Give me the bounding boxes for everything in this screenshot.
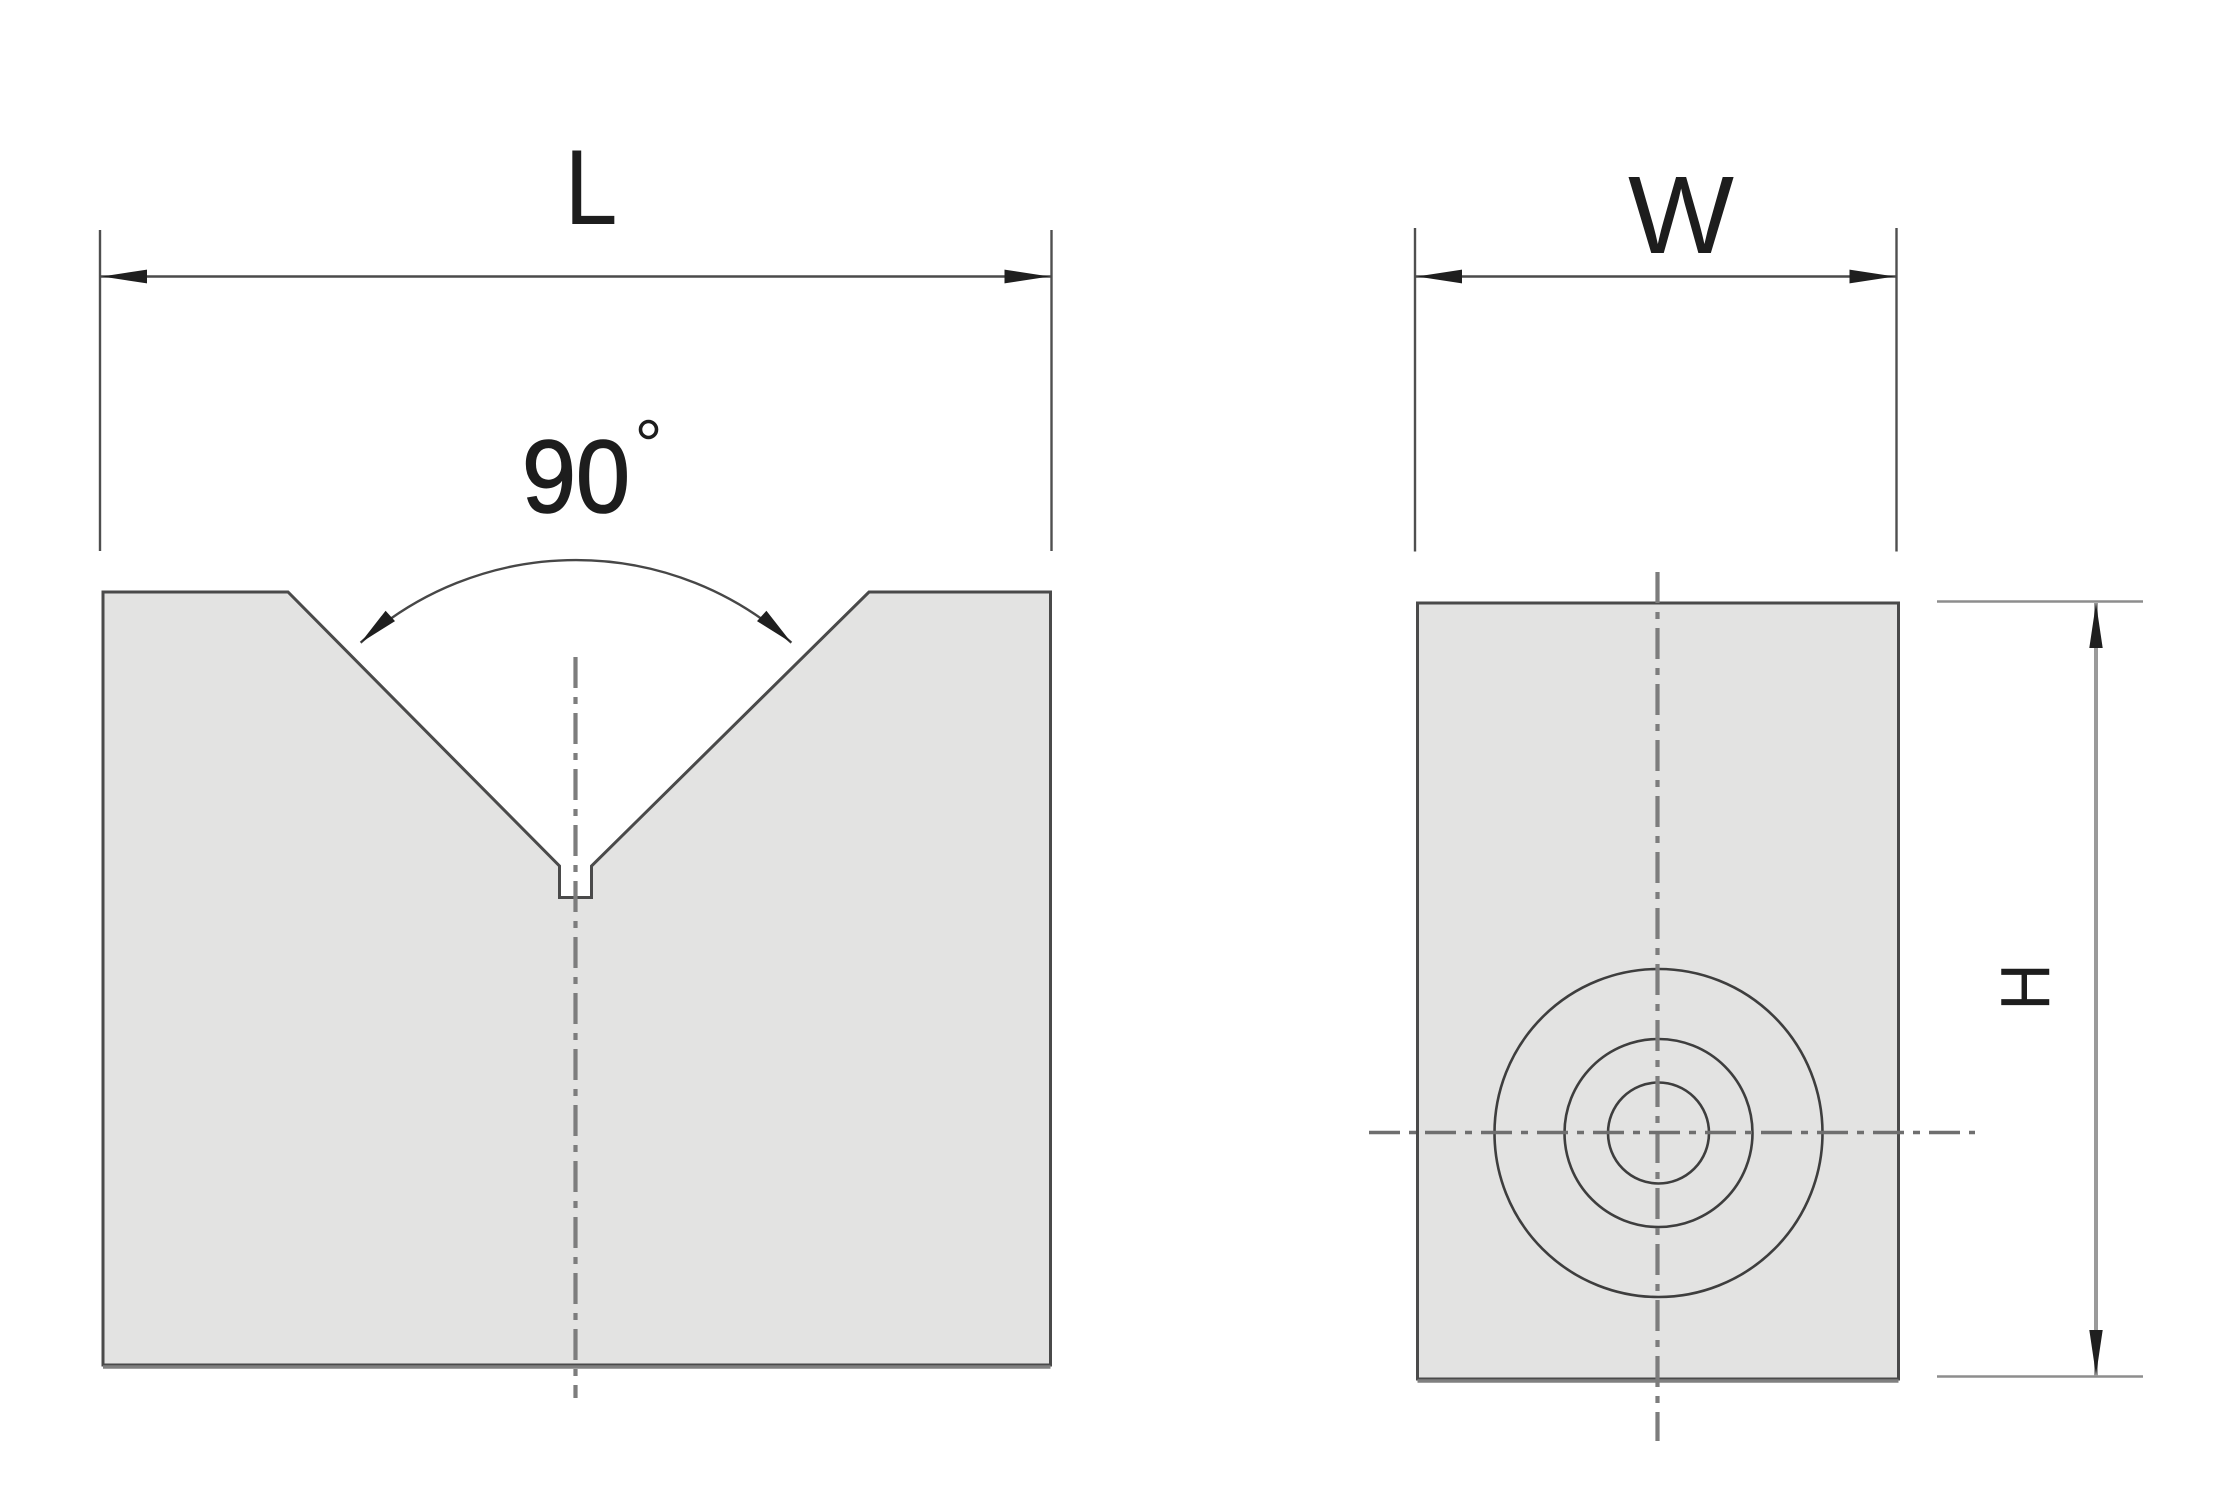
svg-text:L: L xyxy=(565,127,618,247)
svg-text:H: H xyxy=(1986,964,2064,1011)
svg-text:W: W xyxy=(1628,154,1734,277)
svg-text:90: 90 xyxy=(522,419,630,534)
